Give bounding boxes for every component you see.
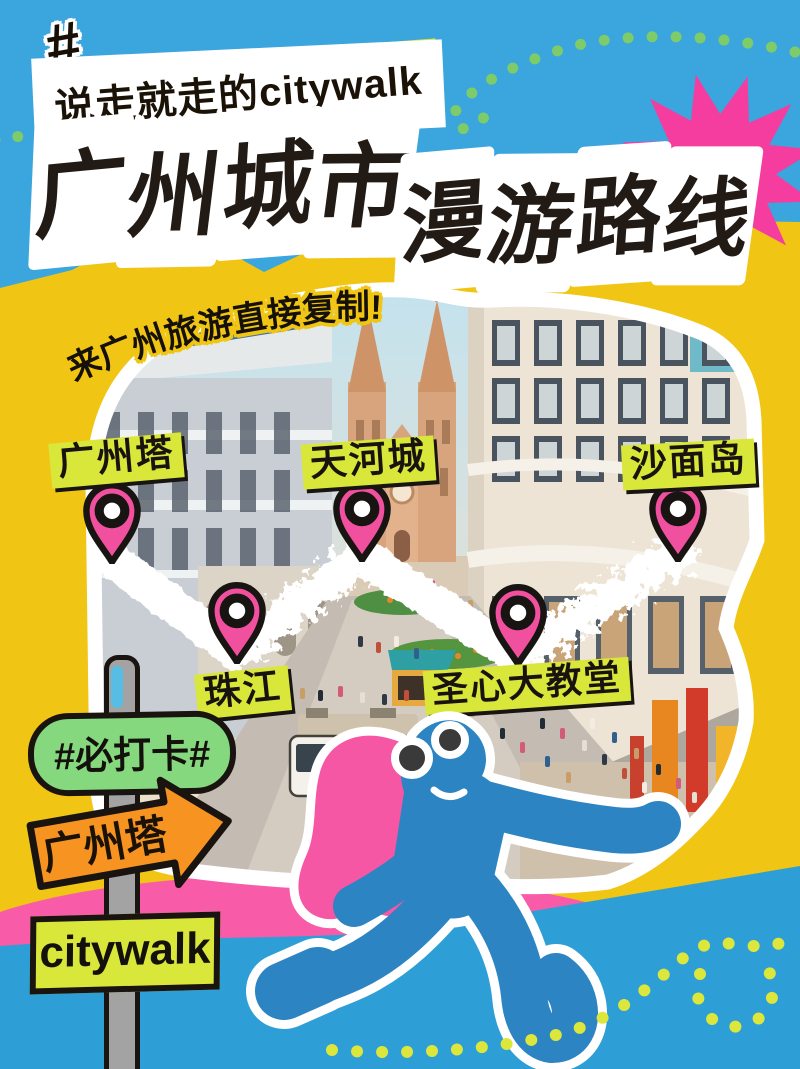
police-bus: 警察 POLICE [290,708,424,807]
map-pin-zhujiang [205,576,269,669]
pin-label-tianhecheng: 天河城 [301,435,437,489]
citywalk-poster: # 说走就走的citywalk 广州城市 漫游路线 [0,0,800,1069]
map-pin-cathedral [486,578,550,671]
pin-label-shamian: 沙面岛 [621,439,756,491]
pole-cap [111,666,123,708]
map-pin-tianhecheng [330,474,394,567]
map-pin-guangzhou-tower [80,476,144,569]
bus-text: 警察 POLICE [347,772,414,786]
citywalk-sign: citywalk [30,911,221,994]
